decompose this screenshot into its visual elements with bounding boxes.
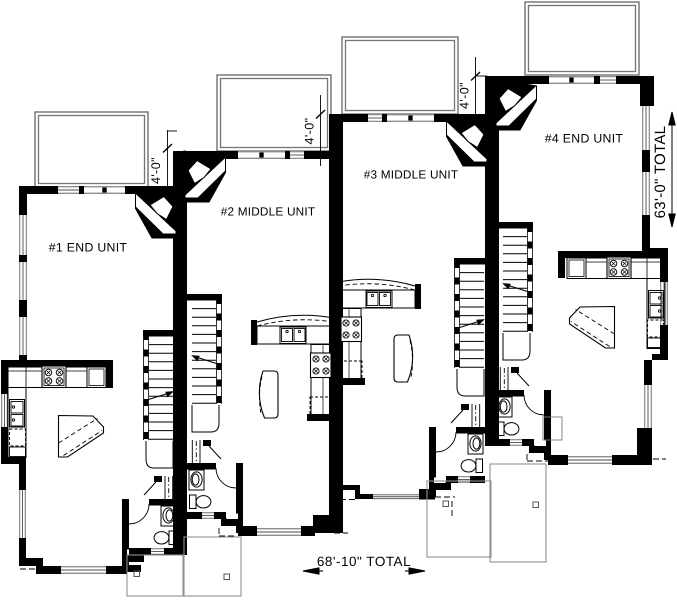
svg-text:#1 END UNIT: #1 END UNIT: [49, 241, 128, 255]
svg-text:68'-10" TOTAL: 68'-10" TOTAL: [317, 554, 411, 569]
svg-text:#3 MIDDLE UNIT: #3 MIDDLE UNIT: [364, 168, 459, 182]
svg-text:4'-0": 4'-0": [149, 157, 163, 184]
svg-text:63'-0" TOTAL: 63'-0" TOTAL: [652, 126, 669, 219]
svg-text:4'-0": 4'-0": [303, 118, 317, 145]
svg-text:4'-0": 4'-0": [458, 82, 472, 109]
svg-text:#4 END UNIT: #4 END UNIT: [545, 132, 624, 146]
svg-text:#2 MIDDLE UNIT: #2 MIDDLE UNIT: [221, 205, 316, 219]
